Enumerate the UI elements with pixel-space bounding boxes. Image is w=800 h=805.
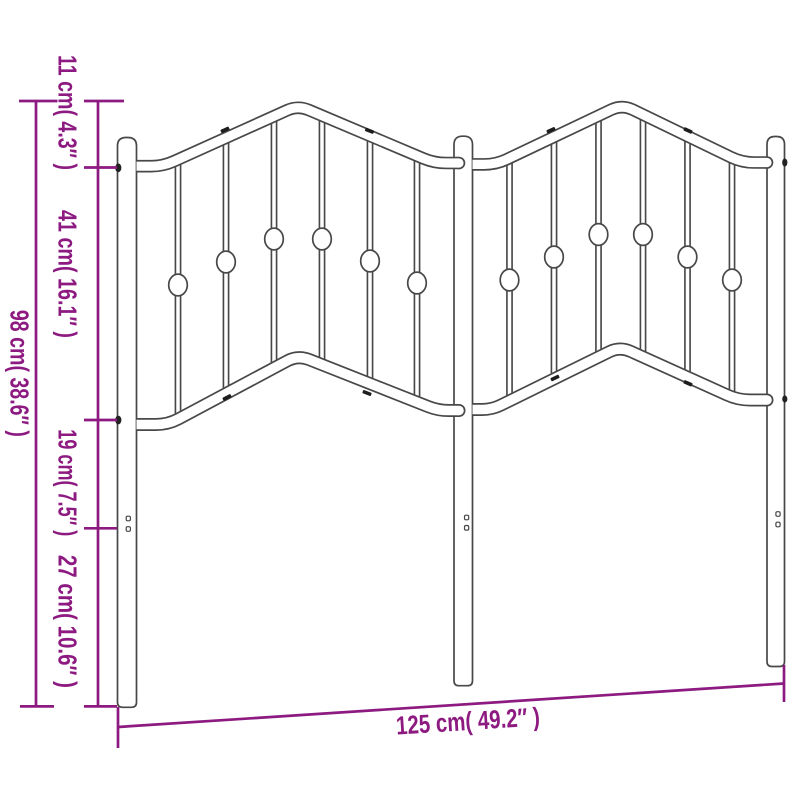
- svg-text:27 cm( 10.6″ ): 27 cm( 10.6″ ): [53, 555, 83, 688]
- svg-text:98 cm( 38.6″ ): 98 cm( 38.6″ ): [5, 310, 35, 437]
- svg-text:11 cm( 4.3″ ): 11 cm( 4.3″ ): [53, 55, 83, 170]
- svg-text:19 cm( 7.5″ ): 19 cm( 7.5″ ): [53, 429, 83, 536]
- svg-text:41 cm( 16.1″ ): 41 cm( 16.1″ ): [53, 210, 83, 338]
